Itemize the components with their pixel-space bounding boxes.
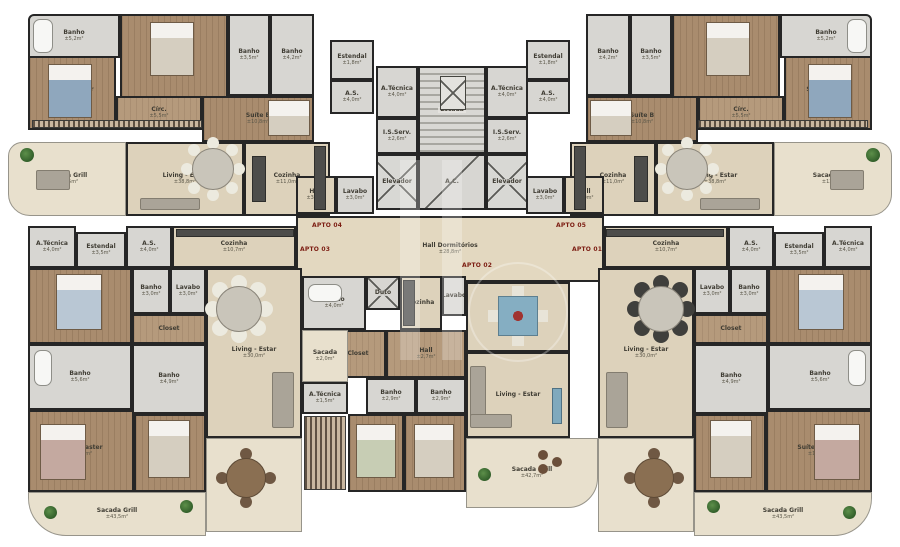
apto02-sacada-small: Sacada±2,0m²	[302, 330, 348, 382]
apto03-closet: Closet	[132, 314, 206, 344]
apto03-banho-a: Banho±4,9m²	[132, 344, 206, 414]
kitchen-counter	[403, 280, 415, 326]
bathtub	[34, 350, 52, 386]
bed	[710, 420, 752, 478]
wardrobe	[698, 120, 868, 128]
apto02-banho-a: Banho±2,9m²	[416, 378, 466, 414]
core-atecnica-left: A.Técnica±4,0m²	[376, 66, 418, 118]
apto03-banho-suite-b: Banho±3,0m²	[132, 268, 170, 314]
apto05-tag: APTO 05	[556, 222, 586, 229]
apto04-banho-b: Banho±4,2m²	[270, 14, 314, 96]
sofa	[140, 198, 200, 210]
apto01-lavabo: Lavabo±3,0m²	[694, 268, 730, 314]
bed	[808, 64, 852, 118]
plant	[180, 500, 193, 513]
apto03-atecnica: A.Técnica±4,0m²	[28, 226, 76, 268]
apto05-banho-b: Banho±4,2m²	[586, 14, 630, 96]
core-atecnica-right: A.Técnica±4,0m²	[486, 66, 528, 118]
apto04-estendal: Estendal±1,8m²	[330, 40, 374, 80]
apto02-banho-b: Banho±2,9m²	[366, 378, 416, 414]
apto03-lavabo: Lavabo±3,0m²	[170, 268, 206, 314]
core-elevador-right: Elevador	[486, 154, 528, 210]
bathtub	[847, 19, 867, 53]
kitchen-counter	[314, 146, 326, 210]
bed	[150, 22, 194, 76]
apto02-atecnica: A.Técnica±1,5m²	[302, 382, 348, 414]
kitchen-counter	[176, 229, 294, 237]
dining-table	[192, 148, 234, 190]
plant	[707, 500, 720, 513]
sofa	[272, 372, 294, 428]
apto04-as: A.S.±4,0m²	[330, 80, 374, 114]
bed	[56, 274, 102, 330]
sofa	[606, 372, 628, 428]
bed	[798, 274, 844, 330]
bed	[356, 424, 396, 478]
sofa	[470, 414, 512, 428]
apto01-tag: APTO 01	[572, 246, 602, 253]
bed	[148, 420, 190, 478]
core-isserv-left: I.S.Serv.±2,6m²	[376, 118, 418, 154]
wardrobe	[32, 120, 202, 128]
bathtub	[848, 350, 866, 386]
floor-plan: Banho±5,2m² Suíte Master±14,5m² Suíte A±…	[0, 0, 900, 547]
bed	[706, 22, 750, 76]
apto02-duto: Duto	[366, 276, 400, 310]
core-isserv-right: I.S.Serv.±2,6m²	[486, 118, 528, 154]
kitchen-island	[252, 156, 266, 202]
tv-panel	[552, 388, 562, 424]
bed	[48, 64, 92, 118]
outdoor-table	[226, 458, 266, 498]
plant	[44, 506, 57, 519]
apto05-lavabo: Lavabo±3,0m²	[526, 176, 564, 214]
apto02-tag: APTO 02	[462, 262, 492, 269]
stair-duct	[440, 76, 466, 110]
apto03-as: A.S.±4,0m²	[126, 226, 172, 268]
plant	[843, 506, 856, 519]
dining-table	[216, 286, 262, 332]
plant	[866, 148, 880, 162]
apto01-banho-a: Banho±4,9m²	[694, 344, 768, 414]
sofa	[700, 198, 760, 210]
lounge-set	[36, 170, 70, 190]
bed	[590, 100, 632, 136]
apto03-tag: APTO 03	[300, 246, 330, 253]
bathtub	[308, 284, 342, 302]
apto04-lavabo: Lavabo±3,0m²	[336, 176, 374, 214]
kitchen-counter	[574, 146, 586, 210]
dining-table	[638, 286, 684, 332]
kitchen-island	[634, 156, 648, 202]
sofa	[470, 366, 486, 420]
bed	[268, 100, 310, 136]
apto05-as: A.S.±4,0m²	[526, 80, 570, 114]
apto02-lavabo: Lavabo	[442, 276, 466, 316]
outdoor-table	[634, 458, 674, 498]
apto05-estendal: Estendal±1,8m²	[526, 40, 570, 80]
apto05-banho-a: Banho±3,5m²	[630, 14, 672, 96]
kitchen-counter	[606, 229, 724, 237]
apto03-estendal: Estendal±3,5m²	[76, 232, 126, 268]
bed	[414, 424, 454, 478]
lounge-set	[830, 170, 864, 190]
apto01-as: A.S.±4,0m²	[728, 226, 774, 268]
apto02-wardrobe	[304, 416, 346, 490]
plant	[478, 468, 491, 481]
core-elevador-left: Elevador	[376, 154, 418, 210]
apto04-banho-a: Banho±3,5m²	[228, 14, 270, 96]
dining-table	[498, 296, 538, 336]
apto01-estendal: Estendal±3,5m²	[774, 232, 824, 268]
apto02-hall: Hall±2,7m²	[386, 330, 466, 378]
apto01-atecnica: A.Técnica±4,0m²	[824, 226, 872, 268]
bed	[814, 424, 860, 480]
poufs	[538, 450, 548, 460]
bed	[40, 424, 86, 480]
core-ac: A.C.	[418, 154, 486, 210]
dining-table	[666, 148, 708, 190]
apto01-banho-suite-b: Banho±3,0m²	[730, 268, 768, 314]
apto01-closet: Closet	[694, 314, 768, 344]
plant	[20, 148, 34, 162]
apto04-tag: APTO 04	[312, 222, 342, 229]
bathtub	[33, 19, 53, 53]
